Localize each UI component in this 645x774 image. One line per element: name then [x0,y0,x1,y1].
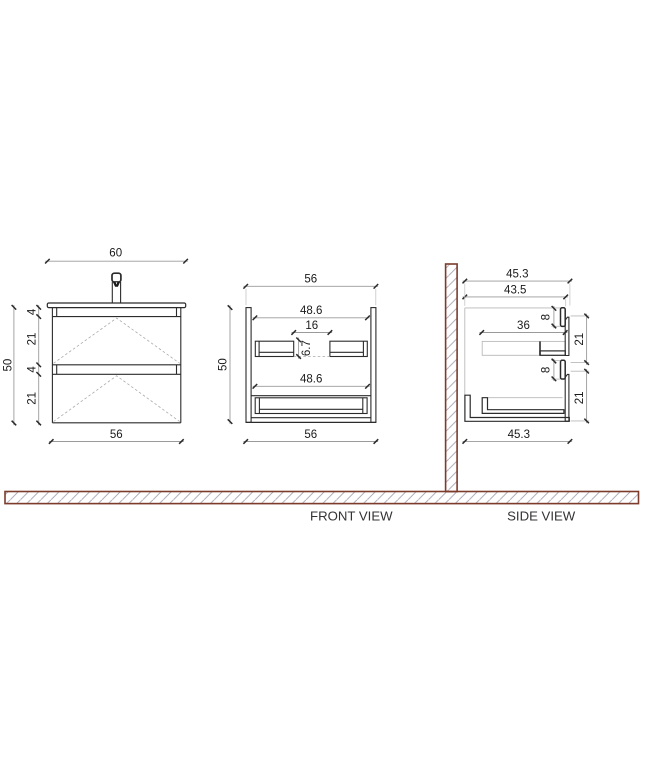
svg-text:6.7: 6.7 [301,340,313,356]
svg-text:43.5: 43.5 [504,284,526,296]
svg-text:21: 21 [574,333,586,346]
svg-text:36: 36 [517,320,530,332]
svg-text:8: 8 [541,314,553,320]
svg-text:50: 50 [217,358,229,371]
svg-text:48.6: 48.6 [300,374,322,386]
svg-text:50: 50 [2,359,14,372]
svg-text:21: 21 [26,333,38,346]
svg-text:56: 56 [110,429,123,441]
svg-text:56: 56 [304,274,317,286]
svg-text:48.6: 48.6 [300,305,322,317]
svg-text:16: 16 [305,320,318,332]
svg-text:4: 4 [26,366,38,373]
svg-text:45.3: 45.3 [508,429,530,441]
svg-text:4: 4 [26,308,38,315]
svg-text:SIDE VIEW: SIDE VIEW [507,508,576,523]
svg-text:56: 56 [304,429,317,441]
svg-text:45.3: 45.3 [506,269,528,281]
svg-text:60: 60 [109,248,122,260]
svg-text:8: 8 [541,367,553,373]
svg-text:21: 21 [26,392,38,405]
svg-text:21: 21 [574,392,586,405]
svg-text:FRONT VIEW: FRONT VIEW [310,508,393,523]
